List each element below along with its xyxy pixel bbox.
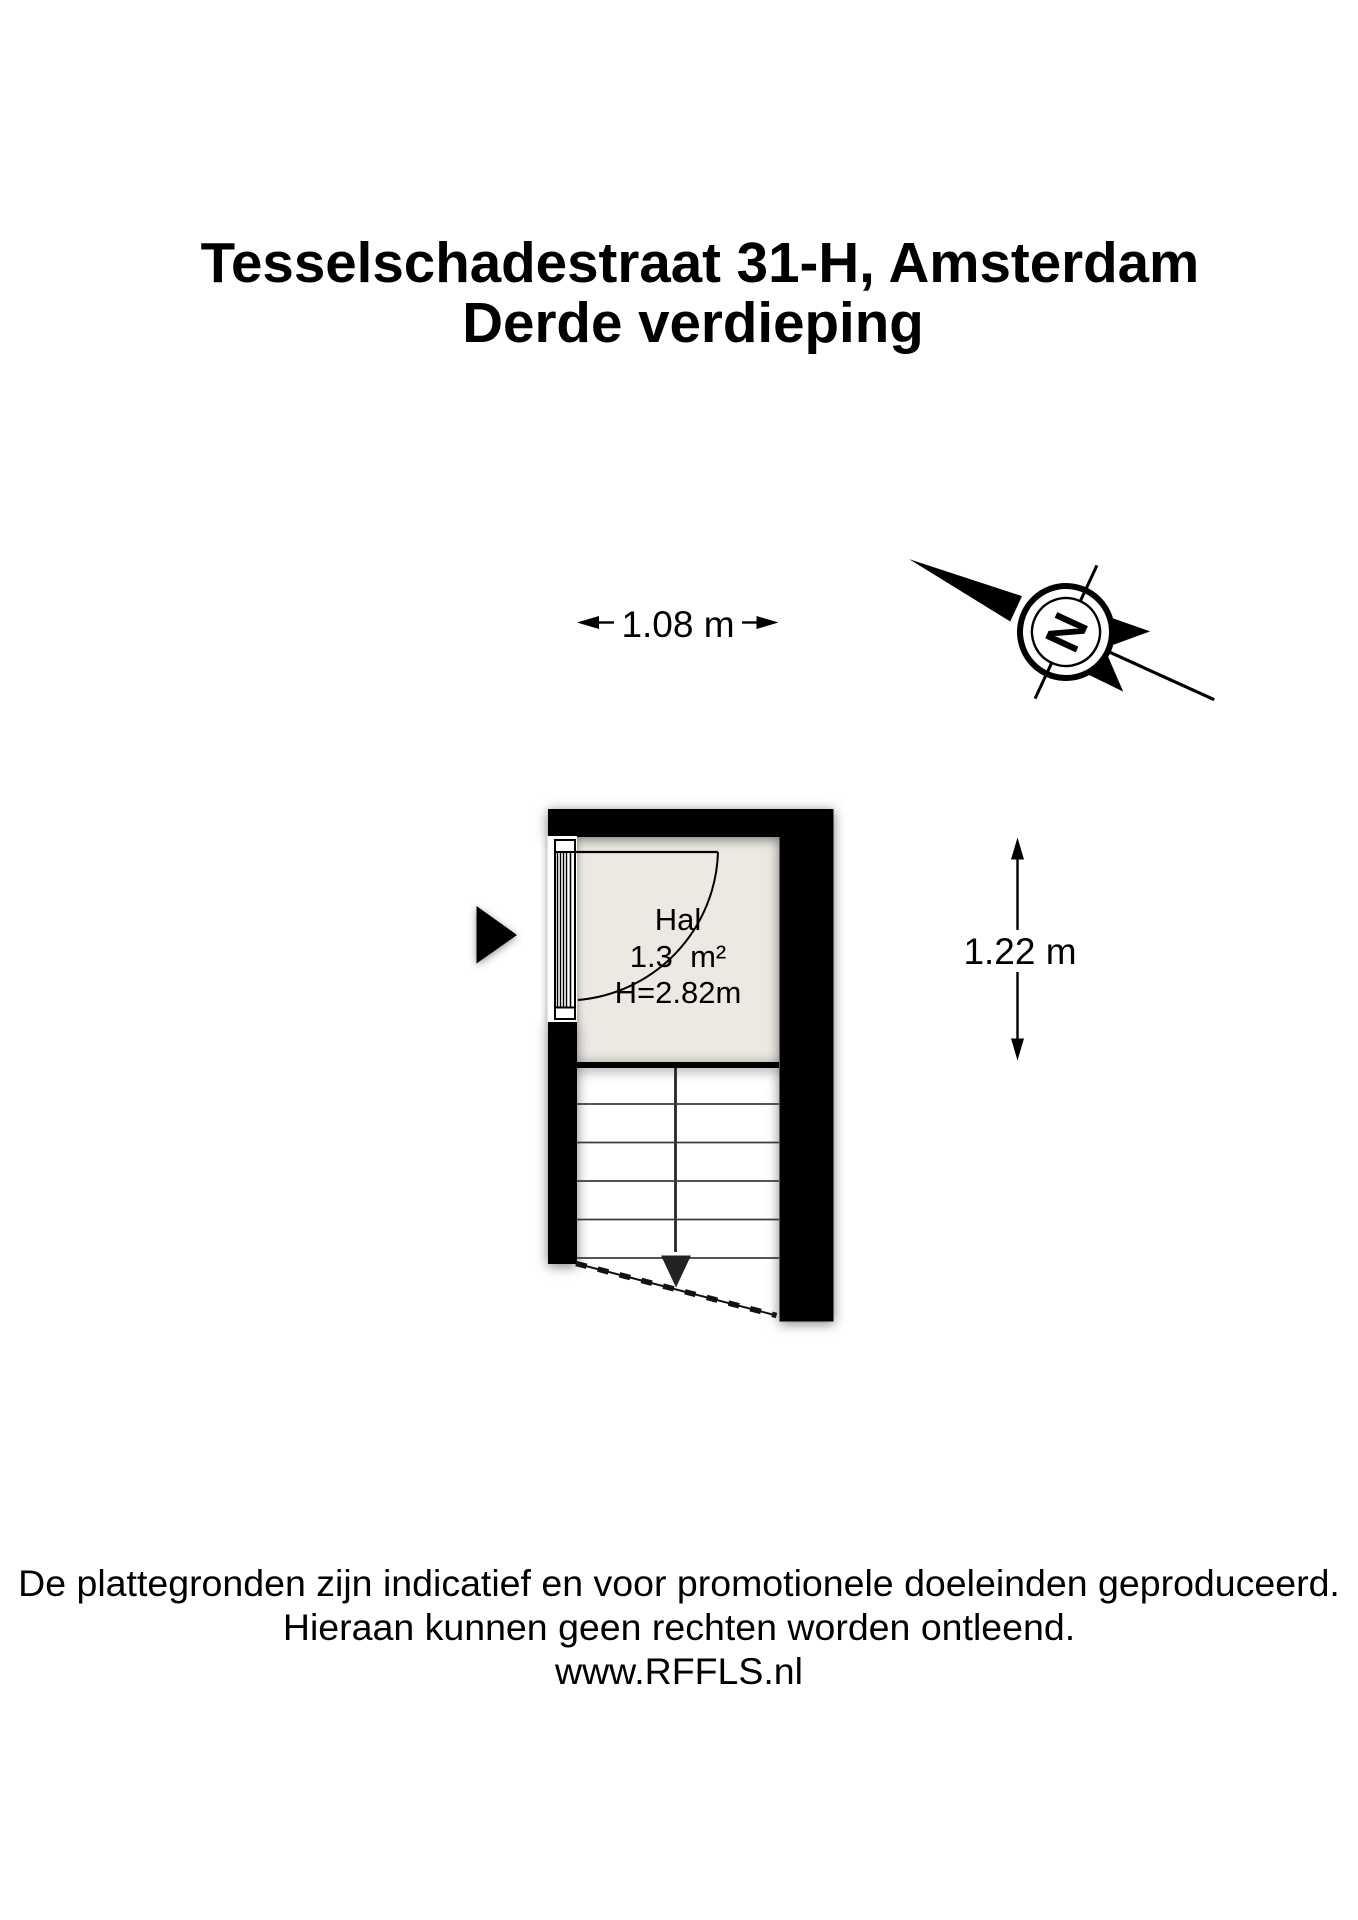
svg-text:1.3 m²: 1.3 m² [630,939,726,974]
svg-text:Hieraan kunnen geen rechten wo: Hieraan kunnen geen rechten worden ontle… [283,1606,1075,1648]
svg-text:Tesselschadestraat 31-H, Amste: Tesselschadestraat 31-H, Amsterdam [201,231,1200,294]
svg-text:Derde verdieping: Derde verdieping [462,291,924,354]
svg-text:1.22 m: 1.22 m [963,931,1076,972]
svg-text:1.08 m: 1.08 m [621,604,734,645]
svg-text:H=2.82m: H=2.82m [615,975,742,1010]
svg-text:De plattegronden zijn indicati: De plattegronden zijn indicatief en voor… [18,1562,1340,1604]
svg-text:www.RFFLS.nl: www.RFFLS.nl [554,1650,803,1692]
svg-text:Hal: Hal [655,902,702,937]
